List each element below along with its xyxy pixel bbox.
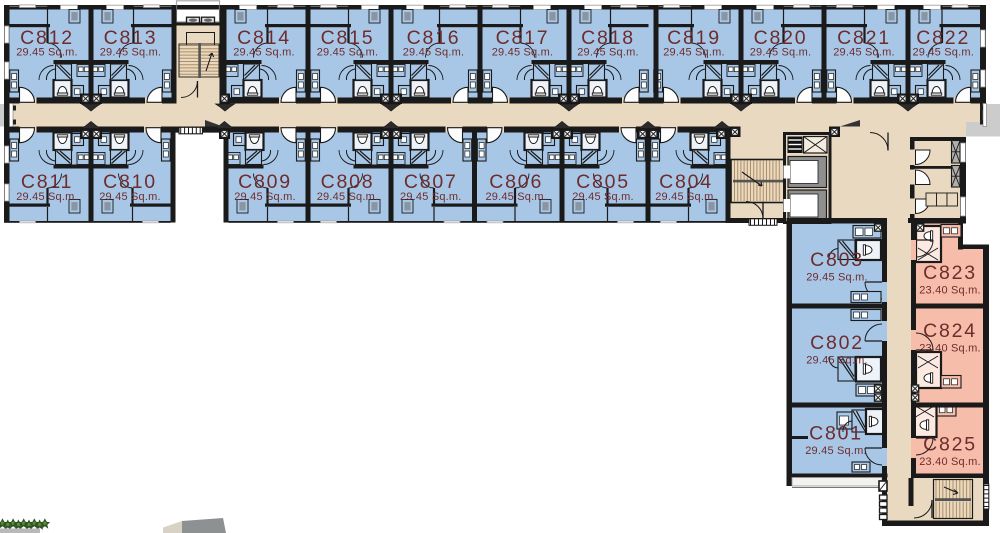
svg-text:29.45 Sq.m.: 29.45 Sq.m. — [16, 47, 78, 59]
svg-text:29.45 Sq.m.: 29.45 Sq.m. — [655, 191, 717, 203]
svg-text:29.45 Sq.m.: 29.45 Sq.m. — [16, 191, 78, 203]
svg-text:23.40 Sq.m.: 23.40 Sq.m. — [919, 285, 981, 297]
svg-text:29.45 Sq.m.: 29.45 Sq.m. — [833, 47, 895, 59]
svg-text:C808: C808 — [321, 171, 375, 193]
svg-text:29.45 Sq.m.: 29.45 Sq.m. — [572, 191, 634, 203]
svg-text:29.45 Sq.m.: 29.45 Sq.m. — [492, 47, 554, 59]
svg-text:C807: C807 — [404, 171, 458, 193]
svg-text:29.45 Sq.m.: 29.45 Sq.m. — [233, 47, 295, 59]
svg-text:C823: C823 — [923, 262, 977, 284]
svg-text:23.40 Sq.m.: 23.40 Sq.m. — [919, 456, 981, 468]
svg-text:29.45 Sq.m.: 29.45 Sq.m. — [485, 191, 547, 203]
svg-text:29.45 Sq.m.: 29.45 Sq.m. — [750, 47, 812, 59]
svg-text:C825: C825 — [923, 434, 977, 456]
svg-text:29.45 Sq.m.: 29.45 Sq.m. — [577, 47, 639, 59]
svg-text:C802: C802 — [810, 332, 864, 354]
svg-text:29.45 Sq.m.: 29.45 Sq.m. — [317, 191, 379, 203]
svg-text:29.45 Sq.m.: 29.45 Sq.m. — [912, 47, 974, 59]
svg-text:C805: C805 — [576, 171, 630, 193]
svg-text:29.45 Sq.m.: 29.45 Sq.m. — [806, 272, 868, 284]
svg-text:29.45 Sq.m.: 29.45 Sq.m. — [100, 47, 162, 59]
svg-text:C803: C803 — [810, 249, 864, 271]
svg-text:C801: C801 — [809, 423, 863, 445]
svg-text:29.45 Sq.m.: 29.45 Sq.m. — [805, 445, 867, 457]
svg-text:29.45 Sq.m.: 29.45 Sq.m. — [400, 191, 462, 203]
svg-text:29.45 Sq.m.: 29.45 Sq.m. — [99, 191, 161, 203]
svg-text:29.45 Sq.m.: 29.45 Sq.m. — [234, 191, 296, 203]
svg-text:C804: C804 — [659, 171, 713, 193]
svg-text:C811: C811 — [21, 171, 73, 193]
svg-text:C824: C824 — [923, 320, 977, 342]
svg-text:C810: C810 — [103, 171, 157, 193]
svg-text:29.45 Sq.m.: 29.45 Sq.m. — [403, 47, 465, 59]
svg-text:29.45 Sq.m.: 29.45 Sq.m. — [663, 47, 725, 59]
svg-text:23.40 Sq.m.: 23.40 Sq.m. — [919, 343, 981, 355]
svg-text:29.45 Sq.m.: 29.45 Sq.m. — [317, 47, 379, 59]
svg-text:C806: C806 — [489, 171, 543, 193]
svg-text:29.45 Sq.m.: 29.45 Sq.m. — [806, 355, 868, 367]
svg-text:C809: C809 — [238, 171, 292, 193]
